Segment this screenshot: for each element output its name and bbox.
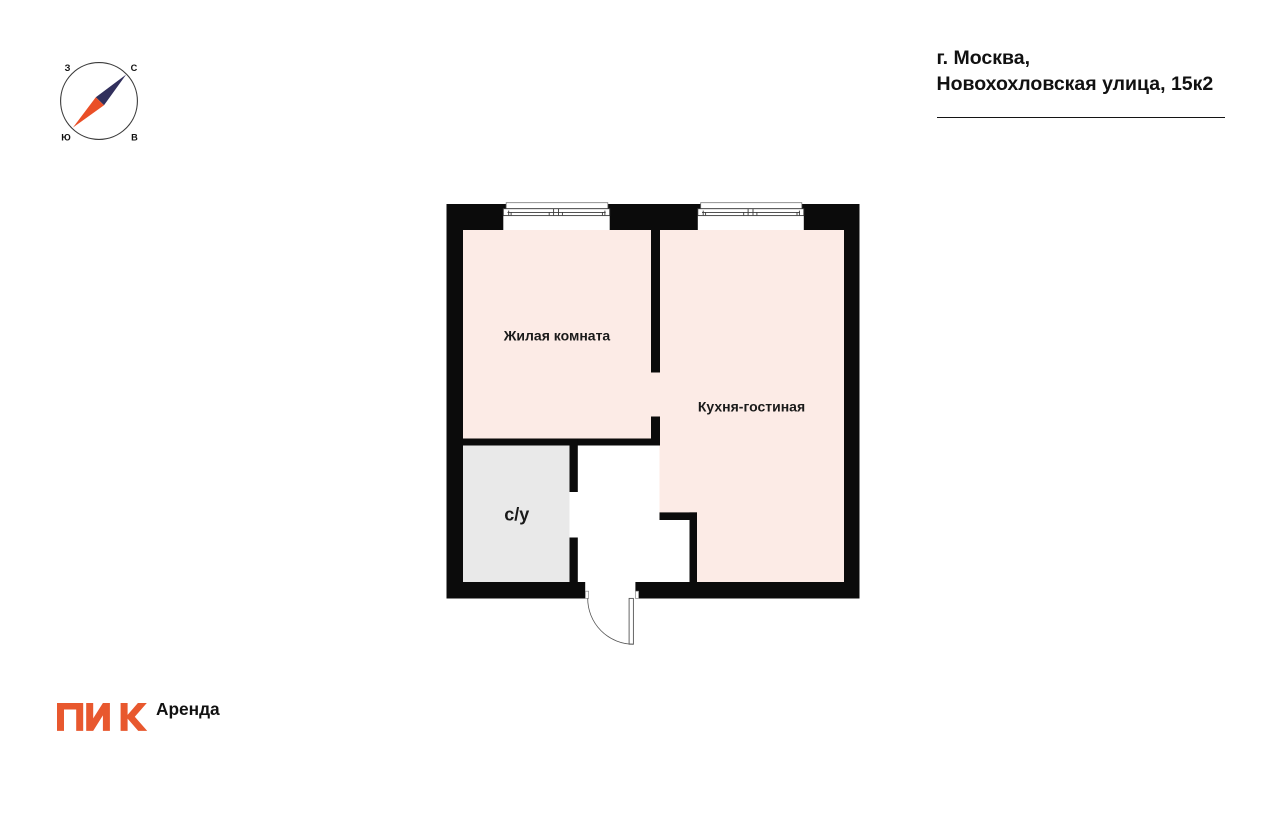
svg-text:Ю: Ю	[61, 133, 71, 143]
svg-text:с/у: с/у	[504, 504, 529, 524]
svg-text:Жилая комната: Жилая комната	[503, 328, 611, 344]
svg-text:Кухня-гостиная: Кухня-гостиная	[698, 399, 805, 415]
svg-text:В: В	[131, 133, 138, 143]
svg-text:С: С	[131, 63, 138, 73]
svg-text:З: З	[65, 63, 71, 73]
